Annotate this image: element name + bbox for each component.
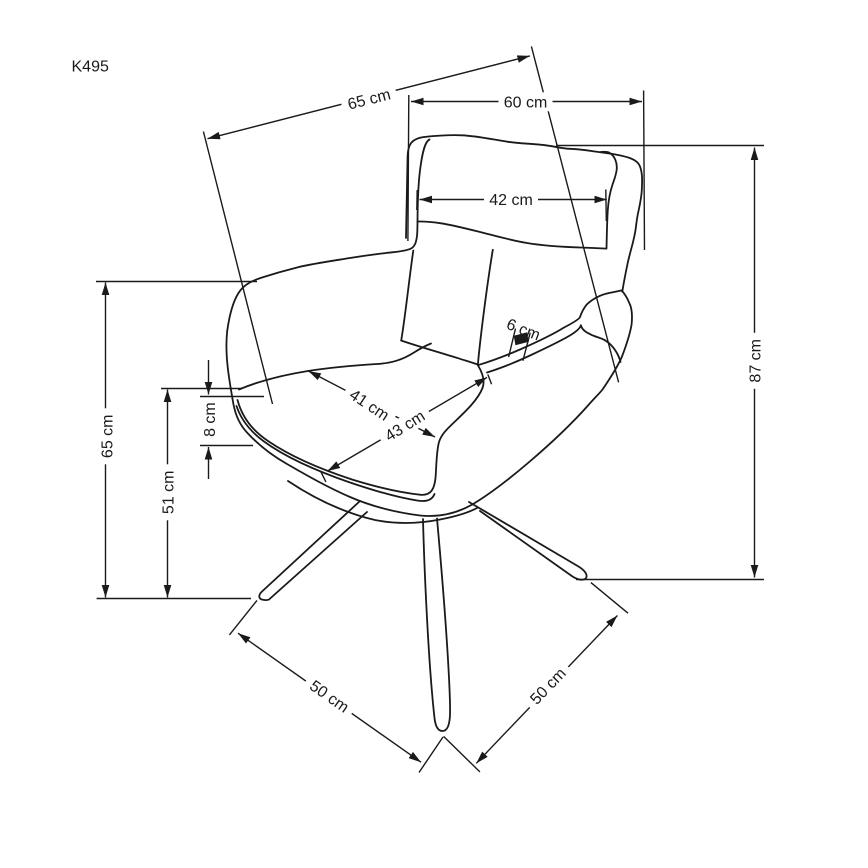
svg-text:8 cm: 8 cm bbox=[202, 402, 219, 437]
svg-text:60 cm: 60 cm bbox=[504, 94, 548, 111]
svg-text:65 cm: 65 cm bbox=[346, 86, 392, 113]
svg-text:65 cm: 65 cm bbox=[99, 415, 116, 459]
svg-text:50 cm: 50 cm bbox=[306, 678, 351, 717]
svg-text:42 cm: 42 cm bbox=[489, 192, 533, 209]
svg-text:51 cm: 51 cm bbox=[160, 471, 177, 515]
svg-text:87 cm: 87 cm bbox=[747, 339, 764, 383]
svg-text:41 cm: 41 cm bbox=[346, 387, 392, 425]
svg-text:K495: K495 bbox=[72, 59, 109, 76]
